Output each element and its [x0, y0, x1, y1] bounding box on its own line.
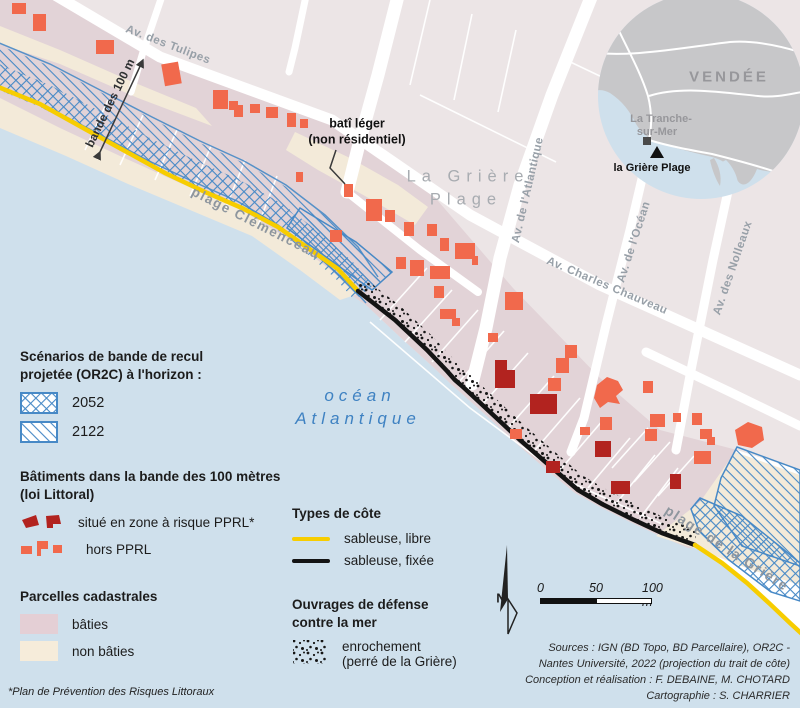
legend-cotes: Types de côte sableuse, libre sableuse, …	[292, 505, 434, 575]
inset-region-label: VENDÉE	[689, 69, 769, 86]
district-label-line2: Plage	[430, 191, 502, 210]
legend-item-2122: 2122	[20, 421, 203, 443]
legend-item-2052: 2052	[20, 392, 203, 414]
hors-pprl-buildings-swatch	[20, 539, 72, 559]
legend-item-sableuse-libre: sableuse, libre	[292, 531, 434, 546]
inset-town-marker	[643, 137, 651, 145]
inset-town-label-line1: La Tranche-	[630, 113, 692, 125]
legend-batiments-title: Bâtiments dans la bande des 100 mètres (…	[20, 468, 280, 504]
map-figure: Av. des Tulipes bande des 100 m batî lég…	[0, 0, 800, 708]
scale-tick-100: 100 m	[642, 581, 668, 609]
legend-item-enrochement: enrochement (perré de la Grière)	[292, 639, 457, 669]
credits-line-2: Nantes Université, 2022 (projection du t…	[525, 657, 790, 673]
north-label: N	[496, 591, 505, 606]
scale-bar: 0 50 100 m	[538, 581, 668, 607]
coast-free-swatch	[292, 537, 330, 541]
credits-line-4: Cartographie : S. CHARRIER	[525, 689, 790, 705]
legend-parcelles-title: Parcelles cadastrales	[20, 588, 157, 606]
ocean-label-line2: Atlantique	[295, 409, 421, 429]
legend-item-sableuse-fixee: sableuse, fixée	[292, 553, 434, 568]
inset-place-label: la Grière Plage	[613, 162, 690, 174]
scale-tick-0: 0	[537, 581, 544, 595]
credits-line-3: Conception et réalisation : F. DEBAINE, …	[525, 673, 790, 689]
legend-scenarios: Scénarios de bande de recul projetée (OR…	[20, 348, 203, 450]
legend-ouvrages: Ouvrages de défense contre la mer enroch…	[292, 596, 457, 676]
legend-ouvrages-title: Ouvrages de défense contre la mer	[292, 596, 457, 632]
credits: Sources : IGN (BD Topo, BD Parcellaire),…	[525, 641, 790, 705]
legend-cotes-title: Types de côte	[292, 505, 434, 523]
ocean-label-line1: océan	[324, 386, 395, 406]
credits-line-1: Sources : IGN (BD Topo, BD Parcellaire),…	[525, 641, 790, 657]
inset-town-label-line2: sur-Mer	[637, 126, 677, 138]
legend-item-pprl: situé en zone à risque PPRL*	[20, 512, 280, 532]
legend-batiments: Bâtiments dans la bande des 100 mètres (…	[20, 468, 280, 566]
legend-parcelles: Parcelles cadastrales bâties non bâties	[20, 588, 157, 668]
legend-enrochement-label: enrochement (perré de la Grière)	[342, 639, 457, 669]
parcel-built-swatch	[20, 614, 58, 634]
hatch-2122-swatch	[20, 421, 58, 443]
district-label-line1: La Grière	[407, 168, 530, 187]
pprl-buildings-swatch	[20, 512, 64, 532]
legend-item-baties: bâties	[20, 614, 157, 634]
coast-fixed-swatch	[292, 559, 330, 563]
scale-bar-white-segment	[596, 598, 652, 604]
legend-item-hors-pprl: hors PPRL	[20, 539, 280, 559]
legend-item-non-baties: non bâties	[20, 641, 157, 661]
bati-leger-label: batî léger (non résidentiel)	[308, 116, 405, 147]
parcel-unbuilt-swatch	[20, 641, 58, 661]
legend-footnote: *Plan de Prévention des Risques Littorau…	[8, 686, 214, 698]
scale-tick-50: 50	[589, 581, 603, 595]
hatch-2052-swatch	[20, 392, 58, 414]
enrochement-swatch	[292, 639, 328, 665]
scale-bar-black-segment	[540, 598, 596, 604]
legend-scenarios-title: Scénarios de bande de recul projetée (OR…	[20, 348, 203, 384]
